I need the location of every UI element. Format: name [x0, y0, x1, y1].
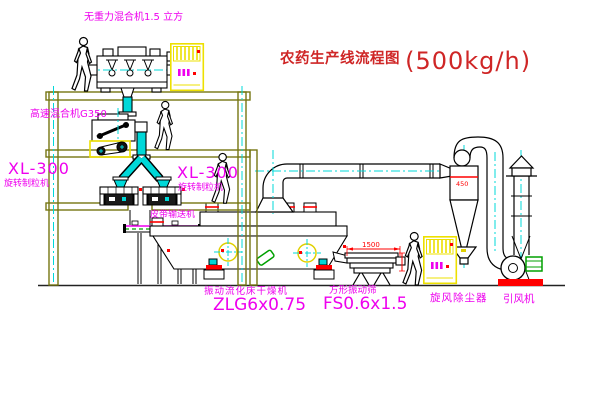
cad-process-flow-drawing: 450 [0, 0, 600, 403]
y-discharge-pipe [122, 158, 160, 179]
exhaust-duct [255, 150, 458, 214]
label-granulator-right-model: XL-300 [177, 165, 239, 181]
person-ground [403, 232, 422, 284]
cyclone-separator: 450 [450, 137, 512, 270]
control-cabinet-top [171, 44, 204, 91]
label-cyclone: 旋风除尘器 [430, 293, 488, 304]
person-second-floor [155, 101, 173, 149]
label-sieve-model: FS0.6x1.5 [323, 296, 407, 313]
drawing-title: 农药生产线流程图 (500kg/h) [280, 47, 531, 75]
control-cabinet-ground [424, 237, 457, 283]
granulator-left [100, 177, 142, 205]
label-fan: 引风机 [503, 294, 535, 305]
label-belt-conveyor: 皮带输送机 [150, 211, 195, 220]
sieve-dimension-text: 1500 [362, 241, 380, 249]
person-top-floor [72, 38, 92, 92]
title-text: 农药生产线流程图 [280, 51, 400, 67]
title-capacity: (500kg/h) [405, 47, 531, 75]
vibrating-sieve [345, 253, 405, 285]
label-granulator-left-model: XL-300 [8, 161, 70, 177]
label-high-speed-mixer: 高速混合机G350 [30, 110, 107, 120]
induced-draft-fan [498, 256, 543, 286]
label-granulator-right-name: 旋转制粒机 [178, 184, 223, 193]
label-granulator-left-name: 旋转制粒机 [4, 180, 49, 189]
cyclone-diameter-text: 450 [456, 180, 468, 188]
label-dryer-model: ZLG6x0.75 [213, 297, 306, 314]
label-gravity-mixer: 无重力混合机1.5 立方 [84, 13, 183, 23]
